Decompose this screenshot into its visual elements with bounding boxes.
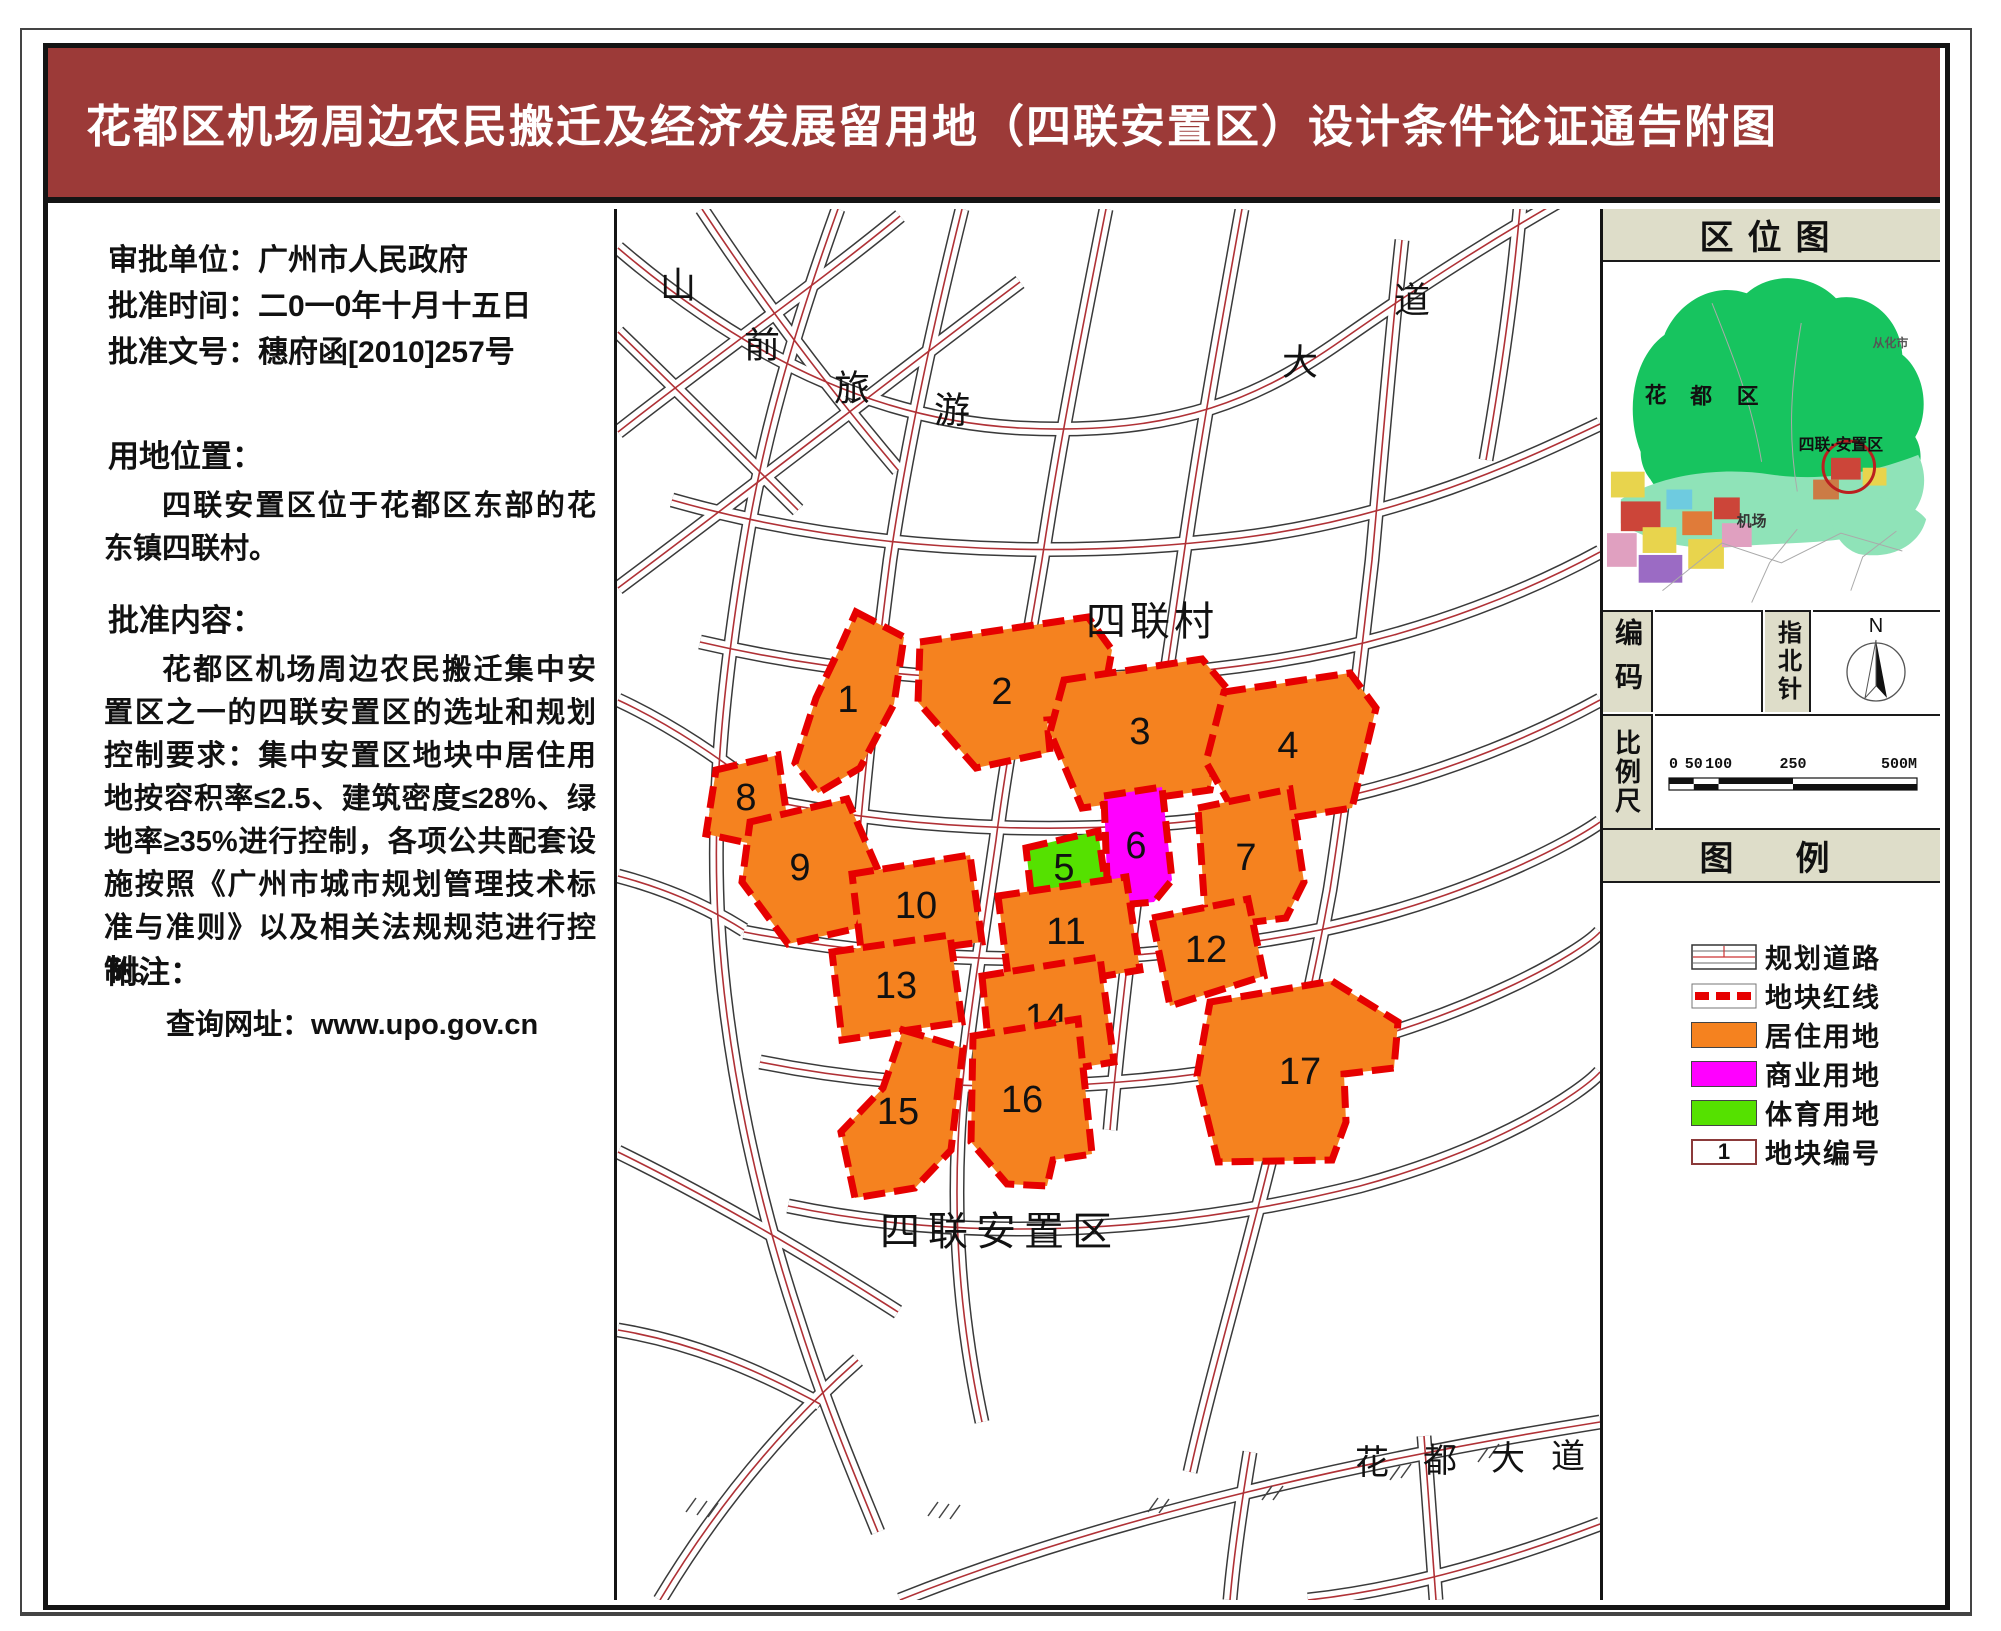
legend-item-residential: 居住用地 (1691, 1015, 1881, 1054)
scale-bar: 050100250500M (1655, 716, 1940, 832)
parcel-number-4: 4 (1277, 725, 1298, 767)
plan-notice-sheet: 花都区机场周边农民搬迁及经济发展留用地（四联安置区）设计条件论证通告附图 审批单… (0, 0, 2001, 1631)
road-name-char: 大 (1282, 342, 1318, 383)
approval-unit-label: 审批单位： (108, 244, 258, 277)
legend-item-label: 居住用地 (1765, 1015, 1881, 1054)
legend-item-number: 1地块编号 (1691, 1132, 1881, 1171)
approval-row: 批准时间：二0一0年十月十五日 (108, 281, 531, 325)
approval-doc-value: 穗府函[2010]257号 (258, 336, 515, 369)
legend-list: 规划道路地块红线居住用地商业用地体育用地1地块编号 (1691, 937, 1881, 1171)
minimap-label: 机场 (1737, 512, 1767, 530)
legend-symbol-residential (1691, 1022, 1757, 1048)
parcel-number-2: 2 (991, 671, 1012, 713)
legend-item-label: 地块红线 (1765, 976, 1881, 1015)
code-value-empty (1655, 610, 1763, 712)
parcel-number-15: 15 (877, 1091, 919, 1133)
parcel-number-12: 12 (1185, 929, 1227, 971)
parcel-number-3: 3 (1129, 711, 1150, 753)
legend-symbol-sports (1691, 1100, 1757, 1126)
parcel-number-13: 13 (875, 965, 917, 1007)
compass-cell: N (1813, 610, 1940, 712)
road-name-char: 游 (934, 390, 970, 431)
parcel-number-11: 11 (1046, 911, 1085, 953)
page-title: 花都区机场周边农民搬迁及经济发展留用地（四联安置区）设计条件论证通告附图 (48, 90, 1778, 155)
minimap-label: 从化市 (1873, 336, 1909, 350)
road-name-char: 山 (660, 265, 696, 306)
approval-unit-value: 广州市人民政府 (258, 244, 468, 277)
approval-date-value: 二0一0年十月十五日 (258, 290, 531, 323)
right-panel: 区位图 (1600, 209, 1940, 1600)
minimap-label: 四联·安置区 (1799, 435, 1884, 454)
parcel-number-7: 7 (1235, 837, 1256, 879)
parcel-number-6: 6 (1125, 825, 1146, 867)
compass-label: 指北针 (1765, 610, 1811, 712)
notes-heading: 附注： (108, 947, 201, 992)
parcel-number-17: 17 (1279, 1051, 1321, 1093)
approval-content-heading: 批准内容： (108, 595, 263, 640)
minimap-label: 都 (1689, 383, 1712, 408)
approval-doc-label: 批准文号： (108, 336, 258, 369)
scale-tick-label: 500M (1881, 756, 1917, 773)
parcel-number-8: 8 (735, 777, 756, 819)
area-label: 大 (1491, 1440, 1525, 1478)
area-label: 四联安置区 (880, 1210, 1120, 1254)
code-label: 编码 (1603, 610, 1653, 712)
legend-symbol-road (1691, 944, 1757, 970)
legend-symbol-redline (1691, 983, 1757, 1009)
parcel-number-1: 1 (837, 679, 858, 721)
area-label: 道 (1551, 1438, 1585, 1476)
approval-content-body: 花都区机场周边农民搬迁集中安置区之一的四联安置区的选址和规划控制要求：集中安置区… (104, 649, 596, 993)
location-inset-title: 区位图 (1603, 209, 1940, 262)
approval-row: 审批单位：广州市人民政府 (108, 235, 468, 279)
legend-title: 图 例 (1603, 830, 1940, 883)
svg-text:N: N (1869, 615, 1883, 637)
road-name-char: 道 (1394, 280, 1430, 321)
title-band: 花都区机场周边农民搬迁及经济发展留用地（四联安置区）设计条件论证通告附图 (48, 48, 1940, 197)
location-heading: 用地位置： (108, 431, 263, 476)
scale-bar-cell: 050100250500M (1655, 714, 1940, 830)
scale-tick-label: 100 (1705, 756, 1732, 773)
area-label: 花 (1355, 1444, 1389, 1482)
scale-tick-label: 250 (1779, 756, 1806, 773)
query-url: 查询网址：www.upo.gov.cn (166, 1001, 538, 1043)
legend-item-label: 体育用地 (1765, 1093, 1881, 1132)
legend-item-redline: 地块红线 (1691, 976, 1881, 1015)
approval-date-label: 批准时间： (108, 290, 258, 323)
parcel-number-10: 10 (895, 885, 937, 927)
road-name-char: 前 (744, 325, 780, 366)
legend-item-label: 商业用地 (1765, 1054, 1881, 1093)
legend-item-commercial: 商业用地 (1691, 1054, 1881, 1093)
parcel-number-9: 9 (789, 847, 810, 889)
bottom-rule (20, 1612, 1970, 1614)
scale-tick-label: 50 (1685, 756, 1703, 773)
plan-map-svg: 1234567891011121314151617 山前旅游大道四联村四联安置区… (617, 209, 1600, 1600)
scale-label: 比例尺 (1603, 714, 1653, 830)
info-panel: 审批单位：广州市人民政府 批准时间：二0一0年十月十五日 批准文号：穗府函[20… (48, 209, 617, 1600)
parcel-layer: 1234567891011121314151617 (706, 612, 1398, 1198)
legend-item-road: 规划道路 (1691, 937, 1881, 976)
scale-tick-label: 0 (1669, 756, 1678, 773)
area-label: 都 (1423, 1442, 1457, 1480)
location-body: 四联安置区位于花都区东部的花东镇四联村。 (104, 485, 596, 571)
minimap-label: 花 (1645, 382, 1667, 407)
area-label: 四联村 (1086, 600, 1218, 644)
legend-item-label: 地块编号 (1765, 1132, 1881, 1171)
plan-map: 1234567891011121314151617 山前旅游大道四联村四联安置区… (617, 209, 1600, 1600)
legend-symbol-commercial (1691, 1061, 1757, 1087)
legend-symbol-number: 1 (1691, 1139, 1757, 1165)
minimap-label: 区 (1737, 383, 1759, 408)
legend-item-sports: 体育用地 (1691, 1093, 1881, 1132)
parcel-number-16: 16 (1001, 1079, 1043, 1121)
compass-icon: N (1813, 612, 1940, 714)
legend-item-label: 规划道路 (1765, 937, 1881, 976)
location-inset-svg: 花都区四联·安置区机场从化市 (1603, 262, 1940, 610)
approval-row: 批准文号：穗府函[2010]257号 (108, 327, 515, 371)
location-inset-map: 花都区四联·安置区机场从化市 (1603, 262, 1940, 610)
road-name-char: 旅 (834, 368, 870, 409)
